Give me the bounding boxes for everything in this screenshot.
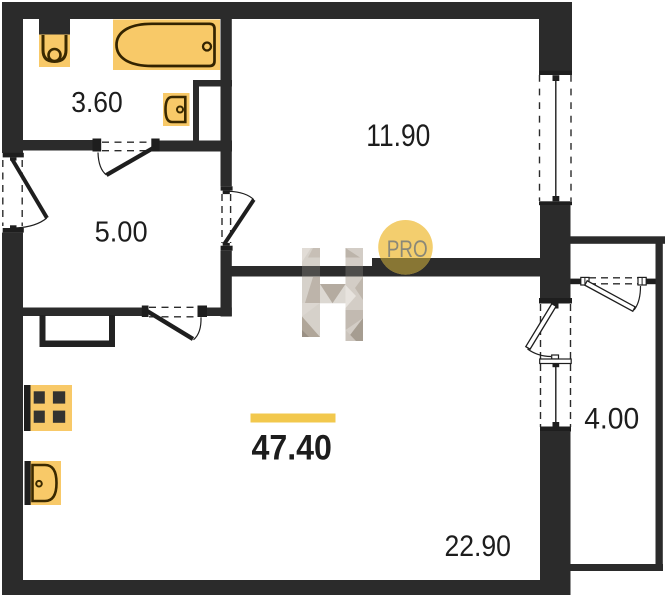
svg-text:3.60: 3.60 (71, 87, 123, 119)
svg-text:47.40: 47.40 (251, 429, 332, 468)
svg-text:4.00: 4.00 (584, 403, 639, 436)
svg-text:11.90: 11.90 (366, 117, 430, 153)
svg-text:5.00: 5.00 (95, 217, 148, 249)
svg-text:22.90: 22.90 (444, 530, 511, 563)
svg-text:PRO: PRO (387, 236, 428, 263)
